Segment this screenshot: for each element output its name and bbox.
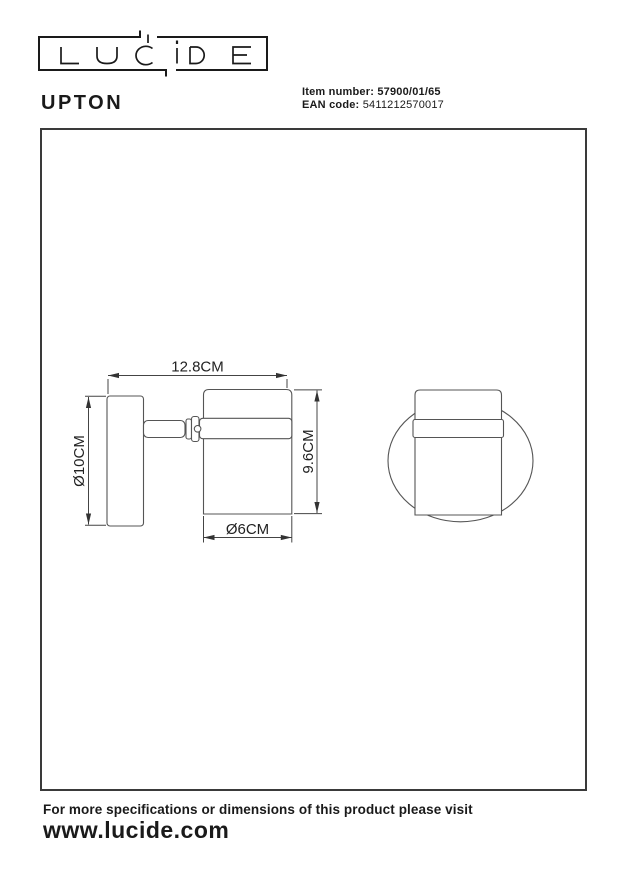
ean-label: EAN code: — [302, 99, 359, 111]
side-wall-plate — [107, 396, 144, 526]
footer-url: www.lucide.com — [43, 817, 229, 844]
dim-head-label: Ø6CM — [226, 521, 269, 538]
side-spot-cylinder — [204, 390, 292, 515]
spec-sheet-page: LUCIDE UPTON Item number: — [0, 0, 620, 877]
item-number-value: 57900/01/65 — [377, 86, 440, 98]
ean-row: EAN code: 5411212570017 — [302, 99, 444, 112]
lucide-logo: LUCIDE — [0, 0, 300, 90]
item-info: Item number: 57900/01/65 EAN code: 54112… — [302, 86, 444, 112]
dimension-plate: Ø10CM — [71, 396, 106, 525]
side-view — [107, 390, 292, 527]
technical-drawing: 12.8CM Ø10CM 9.6CM Ø6CM — [40, 128, 587, 791]
front-spot-body — [415, 390, 502, 515]
item-number-label: Item number: — [302, 86, 374, 98]
dimension-head: Ø6CM — [204, 516, 292, 543]
dim-plate-label: Ø10CM — [71, 435, 88, 487]
item-number-row: Item number: 57900/01/65 — [302, 86, 444, 99]
logo-letters — [61, 35, 251, 65]
side-joint-screw — [194, 426, 201, 433]
side-joint-neck — [186, 419, 192, 439]
ean-value: 5411212570017 — [363, 99, 444, 111]
product-name: UPTON — [41, 92, 123, 115]
front-view — [388, 390, 533, 522]
dimension-height: 9.6CM — [294, 390, 322, 514]
dim-width-label: 12.8CM — [171, 359, 224, 376]
dim-height-label: 9.6CM — [300, 429, 317, 473]
footer-note: For more specifications or dimensions of… — [43, 802, 473, 817]
dimension-width: 12.8CM — [108, 359, 287, 395]
front-ring-band — [413, 420, 504, 438]
side-arm — [144, 421, 186, 438]
side-ring-band — [200, 418, 292, 438]
